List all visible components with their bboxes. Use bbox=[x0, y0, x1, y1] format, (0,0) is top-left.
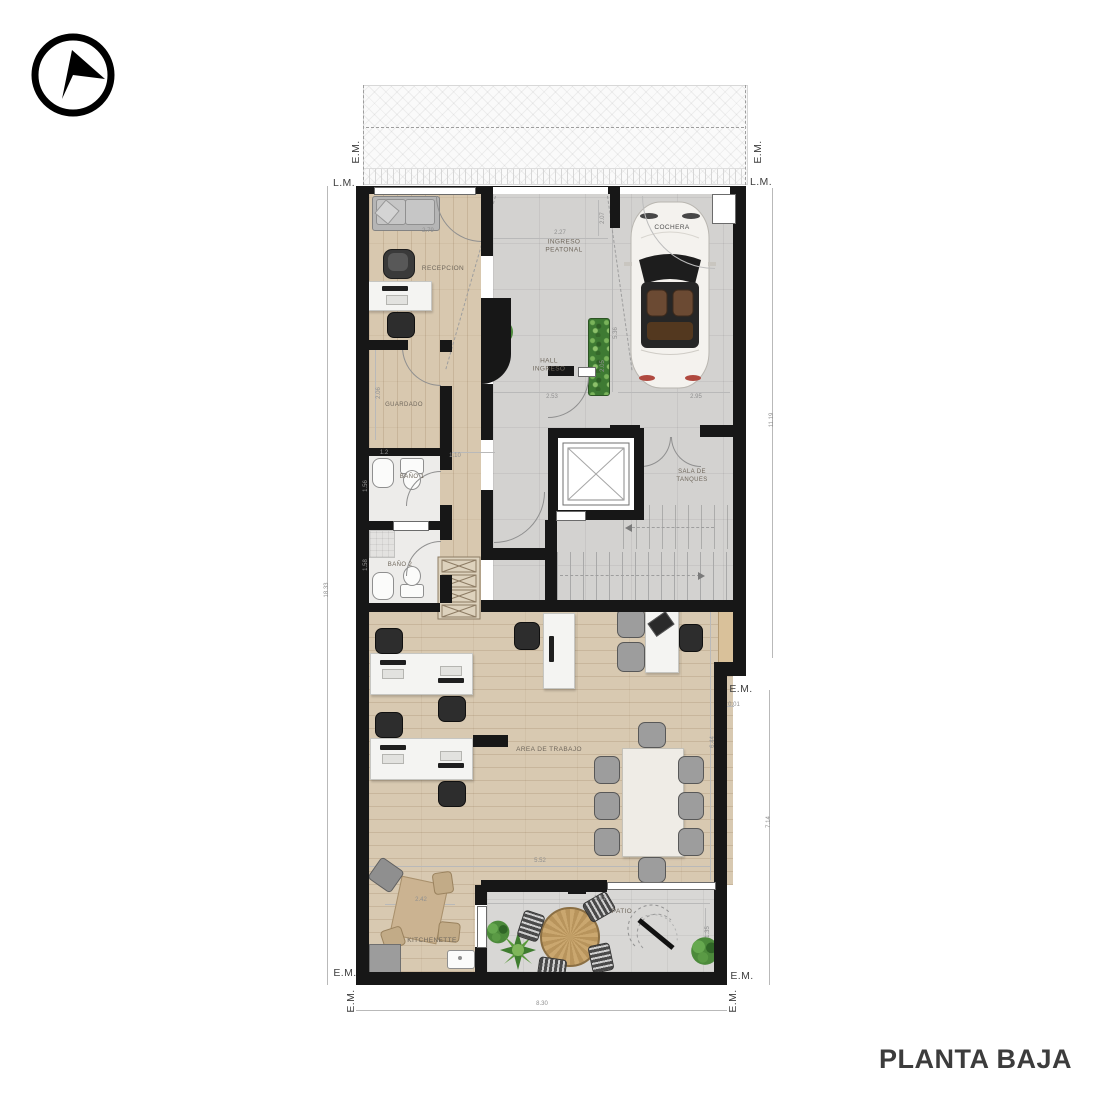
wall-pier bbox=[568, 880, 586, 894]
dim-right-lower: 7.14 bbox=[766, 816, 772, 828]
opening bbox=[493, 187, 608, 194]
stairs-arrow bbox=[625, 524, 632, 532]
meeting-chair bbox=[638, 722, 666, 748]
marker-lm-right: L.M. bbox=[750, 176, 772, 188]
elevator-shaft-icon bbox=[562, 442, 630, 506]
wall bbox=[475, 947, 487, 972]
dim-bano2-d: 1.58 bbox=[363, 559, 369, 571]
monitor bbox=[549, 636, 554, 662]
patio-window bbox=[607, 882, 716, 890]
floor-plan-sheet: { "title": "PLANTA BAJA", "markers": { "… bbox=[0, 0, 1100, 1100]
chair bbox=[617, 642, 645, 672]
toilet bbox=[400, 584, 424, 598]
meeting-chair bbox=[678, 756, 704, 784]
office-chair bbox=[514, 622, 540, 650]
meeting-chair bbox=[594, 756, 620, 784]
meeting-chair bbox=[678, 792, 704, 820]
dim-guardado-w: 1.2 bbox=[380, 450, 388, 456]
wall bbox=[481, 600, 745, 612]
trash-bin bbox=[369, 944, 401, 974]
north-arrow-icon bbox=[27, 29, 119, 121]
kitchen-chair bbox=[432, 871, 455, 896]
dim-line bbox=[769, 690, 770, 985]
window bbox=[374, 187, 476, 195]
dim-pasillo: 1.10 bbox=[449, 453, 461, 459]
marker-em-left-top: E.M. bbox=[350, 140, 362, 163]
keyboard bbox=[386, 295, 408, 305]
keyboard bbox=[382, 669, 404, 679]
dim-cochera-w: 2.95 bbox=[690, 394, 702, 400]
bath-sink bbox=[372, 572, 394, 600]
marker-em-bottom-right-v: E.M. bbox=[727, 989, 739, 1012]
chair bbox=[617, 608, 645, 638]
room-label-recepcion: RECEPCION bbox=[422, 265, 464, 273]
monitor bbox=[438, 763, 464, 768]
marker-em-bottom-left-v: E.M. bbox=[345, 989, 357, 1012]
door-leaf bbox=[393, 521, 429, 531]
dim-lot-left: 18.33 bbox=[324, 582, 330, 597]
garage-door-pocket bbox=[712, 194, 736, 224]
monitor bbox=[380, 660, 406, 665]
property-line-left bbox=[363, 85, 364, 185]
wall-right-lower bbox=[714, 676, 727, 985]
armchair-seat bbox=[388, 253, 408, 271]
dim-hall-w: 2.53 bbox=[546, 394, 558, 400]
dim-patio-d: 1.35 bbox=[705, 926, 711, 938]
elevator-wall-right bbox=[634, 438, 644, 520]
sun-diagram bbox=[625, 902, 687, 964]
dim-cochera-d: 5.36 bbox=[613, 327, 619, 339]
room-label-guardado: GUARDADO bbox=[385, 402, 423, 410]
wall bbox=[545, 520, 557, 612]
dim-notch: 0.01 bbox=[728, 702, 740, 708]
entry-door-panel bbox=[578, 367, 596, 377]
stairs-arrow bbox=[698, 572, 705, 580]
keyboard bbox=[440, 666, 462, 676]
wall-stub bbox=[610, 194, 620, 228]
keyboard bbox=[382, 754, 404, 764]
room-label-tanques: SALA DE TANQUES bbox=[676, 469, 707, 485]
marker-em-bottom-right-h: E.M. bbox=[730, 970, 753, 982]
dim-ingreso-d: 2.07 bbox=[600, 212, 606, 224]
wall bbox=[481, 490, 493, 548]
room-label-kitchenette: KITCHENETTE bbox=[407, 937, 457, 945]
office-chair bbox=[375, 628, 403, 654]
monitor bbox=[380, 745, 406, 750]
office-chair bbox=[375, 712, 403, 738]
room-label-patio: PATIO bbox=[612, 908, 633, 916]
keyboard bbox=[440, 751, 462, 761]
dim-trabajo-w: 5.52 bbox=[534, 858, 546, 864]
marker-lm-left: L.M. bbox=[333, 177, 355, 189]
dim-bano1-d: 1.56 bbox=[363, 480, 369, 492]
setback-line bbox=[366, 127, 744, 128]
work-desk-vertical bbox=[543, 613, 575, 689]
sink-drain bbox=[458, 956, 462, 960]
office-chair bbox=[679, 624, 703, 652]
office-chair bbox=[438, 696, 466, 722]
property-line-right bbox=[745, 85, 746, 185]
wall-stub bbox=[473, 735, 508, 747]
wall bbox=[610, 425, 640, 437]
sofa-cushion bbox=[405, 199, 435, 225]
stairs-walk-line bbox=[632, 527, 714, 528]
wall-left bbox=[356, 186, 369, 985]
sidewalk-ticks bbox=[363, 168, 746, 184]
dim-line bbox=[598, 200, 599, 236]
page-title: PLANTA BAJA bbox=[860, 1044, 1072, 1075]
dim-bottom: 8.30 bbox=[536, 1001, 548, 1007]
marker-em-right-mid: E.M. bbox=[729, 683, 752, 695]
monitor bbox=[438, 678, 464, 683]
meeting-table bbox=[622, 748, 684, 857]
dim-sofa: 2.79 bbox=[422, 228, 434, 234]
dim-trabajo-d: 6.44 bbox=[710, 736, 716, 748]
meeting-chair bbox=[594, 828, 620, 856]
wall bbox=[440, 575, 452, 603]
stairs-walk-line bbox=[560, 575, 700, 576]
dim-line bbox=[356, 1010, 727, 1011]
wall bbox=[440, 505, 452, 540]
vertical-garden bbox=[588, 318, 610, 396]
marker-em-bottom-left-h: E.M. bbox=[333, 967, 356, 979]
wall bbox=[700, 425, 733, 437]
office-chair bbox=[387, 312, 415, 338]
wall bbox=[440, 340, 452, 350]
sliding-door-leaf bbox=[477, 906, 487, 948]
dim-hall-d: 2.05 bbox=[600, 360, 606, 372]
wall bbox=[481, 194, 493, 256]
meeting-chair bbox=[678, 828, 704, 856]
room-label-hall: HALL INGRESO bbox=[533, 358, 566, 375]
dim-right-upper: 11.19 bbox=[769, 413, 775, 428]
room-label-cochera: COCHERA bbox=[654, 224, 689, 232]
wall bbox=[369, 603, 440, 612]
wall-right-cap bbox=[714, 662, 746, 676]
bath-sink bbox=[372, 458, 394, 488]
wall bbox=[481, 384, 493, 440]
dim-patio-w: 5.41 bbox=[594, 896, 606, 902]
elevator-wall-left bbox=[548, 438, 558, 520]
wall-bottom bbox=[356, 972, 727, 985]
office-chair bbox=[438, 781, 466, 807]
elevator-door-leaf bbox=[556, 511, 586, 521]
marker-em-right-top: E.M. bbox=[752, 140, 764, 163]
stairs-lower-flight bbox=[557, 552, 733, 600]
room-label-ingreso: INGRESO PEATONAL bbox=[545, 239, 582, 256]
dim-ingreso-w: 2.27 bbox=[554, 230, 566, 236]
wall bbox=[369, 340, 408, 350]
meeting-chair bbox=[638, 857, 666, 883]
shower-bath2 bbox=[369, 530, 395, 558]
dim-guardado-d: 2.06 bbox=[376, 387, 382, 399]
dim-kitch-w: 2.42 bbox=[415, 897, 427, 903]
room-label-bano2: BAÑO 2 bbox=[388, 562, 412, 570]
room-label-bano1: BAÑO 1 bbox=[400, 474, 424, 482]
wall-patio-top bbox=[481, 880, 607, 892]
meeting-chair bbox=[594, 792, 620, 820]
room-label-trabajo: AREA DE TRABAJO bbox=[516, 746, 582, 754]
monitor bbox=[382, 286, 408, 291]
garage-opening bbox=[620, 187, 730, 194]
